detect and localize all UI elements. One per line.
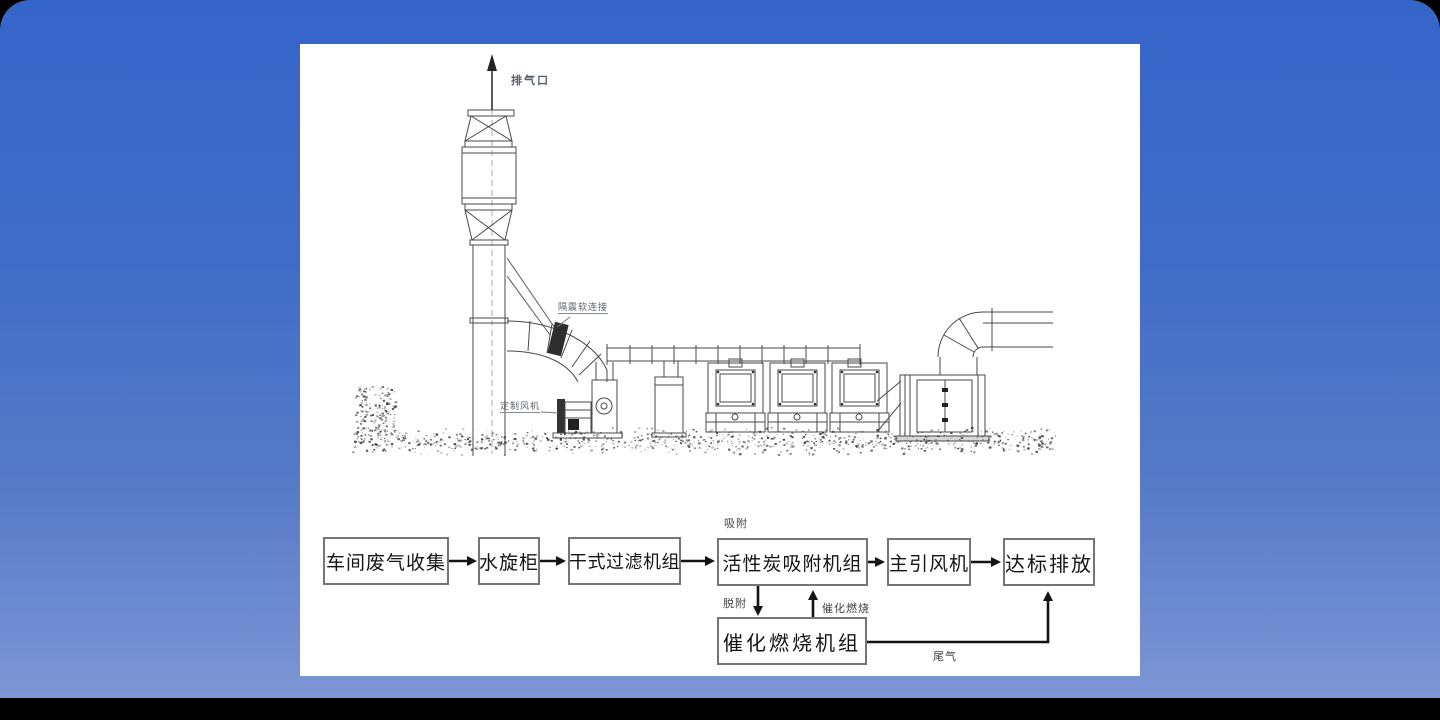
stack-group [462,54,516,456]
flow-box-workshop-gas-collection: 车间废气收集 [323,537,449,585]
annotation-desorption: 脱附 [723,595,747,611]
arrow-up-icon [1043,591,1053,601]
adsorption-modules [706,363,889,432]
flow-box-dry-filter-unit: 干式过滤机组 [568,537,681,585]
arrow-down-icon [753,606,763,616]
up-arrow-icon [487,54,497,71]
arrow-right-icon [467,556,477,566]
custom-fan-label: 定制风机 [500,401,540,413]
flow-box-activated-carbon-adsorption-unit: 活性炭吸附机组 [717,538,868,586]
filter-box [652,361,686,437]
arrow-right-icon [991,557,1001,567]
arrow-up-icon [808,590,818,600]
inlet-duct [507,317,607,382]
annotation-tail-gas: 尾气 [933,648,957,664]
annotation-catalytic-combustion: 催化燃烧 [822,600,870,616]
flow-box-water-spin-cabinet: 水旋柜 [478,537,540,585]
flow-box-main-draft-fan: 主引风机 [887,538,971,586]
diagram-panel: 排气口 隔震软连接 定制风机 车间废气收集 水旋柜 干式过滤机组 活性炭吸附机组… [300,44,1140,676]
annotation-adsorption: 吸附 [724,515,748,531]
exhaust-outlet-label: 排气口 [511,72,550,88]
arrow-right-icon [705,556,715,566]
catalytic-unit [896,308,1053,441]
fan-group [541,362,622,438]
flex-connector-label: 隔震软连接 [558,302,608,314]
arrow-right-icon [556,556,566,566]
flow-box-standard-discharge: 达标排放 [1003,538,1095,586]
ground-texture [352,386,1056,456]
arrow-right-icon [875,557,885,567]
flow-box-catalytic-combustion-unit: 催化燃烧机组 [717,617,867,665]
manifold-duct [607,344,861,367]
